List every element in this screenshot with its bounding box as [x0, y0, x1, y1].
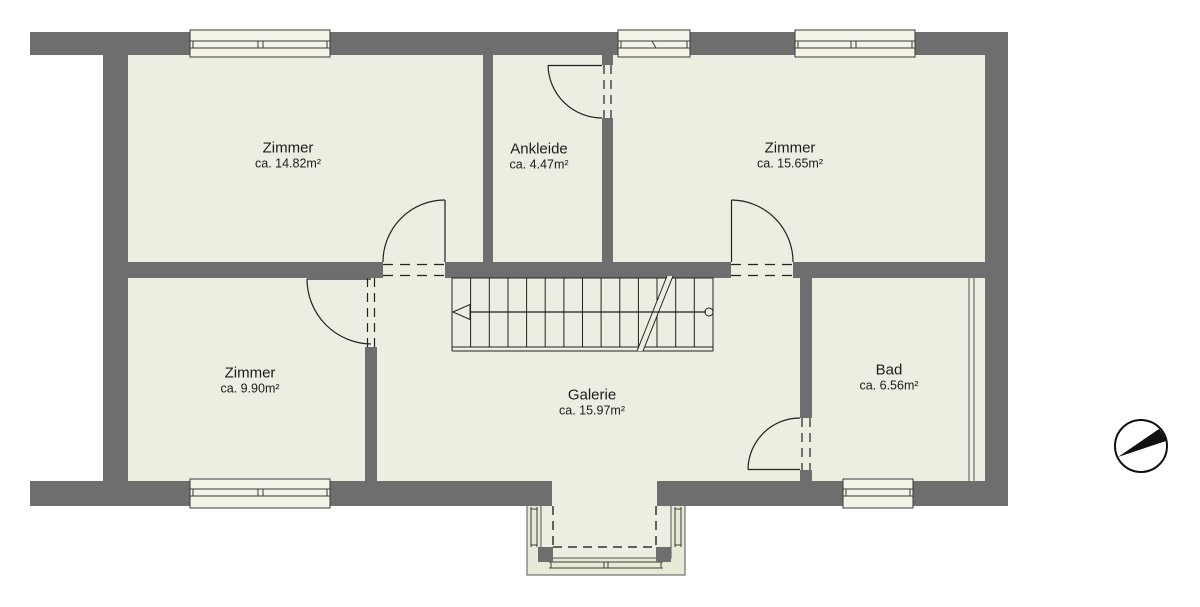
window-bottom-left [190, 479, 330, 508]
wall-galerie-bad-stub [800, 470, 812, 481]
north-arrow-icon [1115, 420, 1167, 472]
window-top-right [795, 30, 915, 57]
floor-plan-canvas: Zimmer ca. 14.82m² Ankleide ca. 4.47m² Z… [0, 0, 1200, 607]
bay-post-right [656, 547, 671, 562]
wall-exterior-right [985, 32, 1008, 506]
bay-floor [541, 503, 671, 558]
wall-zimmer-ankleide [483, 55, 493, 262]
wall-exterior-left [103, 32, 128, 506]
window-top-left [190, 30, 330, 57]
wall-middle-horizontal [128, 262, 985, 278]
staircase [452, 276, 713, 351]
wall-zimmer-galerie [365, 347, 377, 481]
window-bad [843, 479, 913, 508]
floor-plan-drawing [0, 0, 1200, 607]
wall-galerie-bad [800, 278, 812, 418]
window-top-middle [618, 30, 690, 57]
bay-loggia [527, 503, 685, 575]
wall-ankleide-zimmer [602, 118, 613, 262]
bay-post-left [538, 547, 553, 562]
wall-ankleide-zimmer-stub [602, 55, 613, 65]
